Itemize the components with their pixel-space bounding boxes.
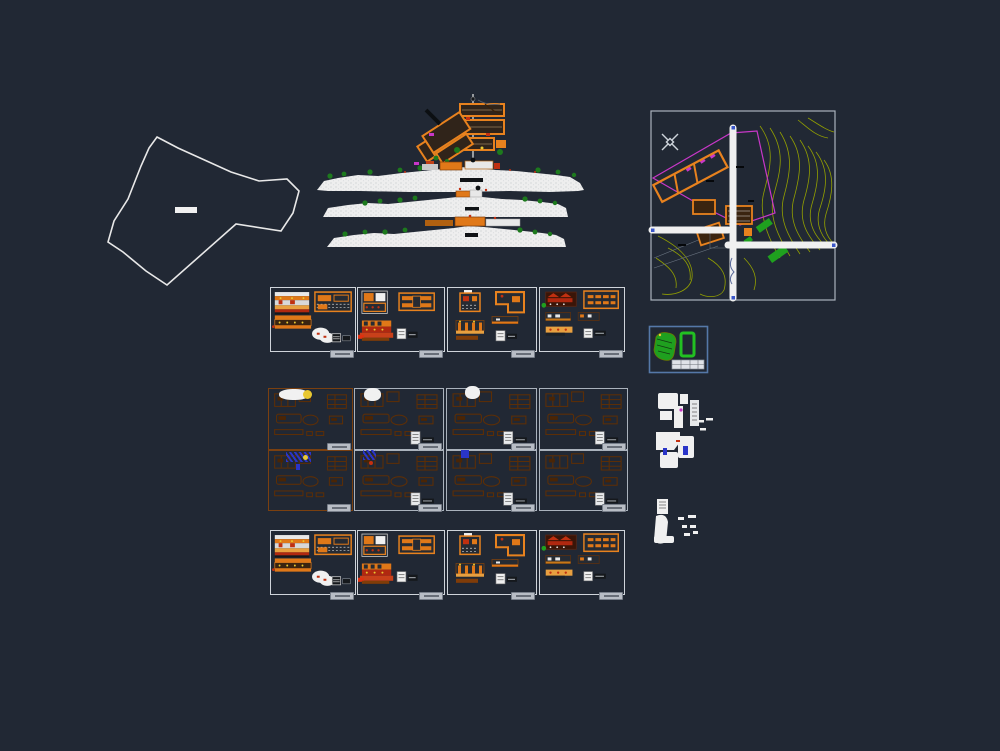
elevation-bottomleft	[358, 321, 393, 341]
blue-accent	[296, 464, 300, 470]
sheet-label[interactable]	[330, 350, 354, 358]
plan-topleft	[362, 534, 387, 556]
title-stamp	[584, 329, 606, 338]
green-detail-sheet[interactable]	[648, 325, 710, 375]
sheet-content	[540, 288, 624, 351]
dim-plans	[546, 392, 621, 436]
sheet-content	[540, 451, 627, 510]
elevation-mid	[272, 558, 311, 571]
drawing-sheet-upper-row[interactable]	[539, 287, 625, 352]
sheet-content	[447, 451, 536, 510]
blue-accent	[461, 450, 469, 458]
sheet-label[interactable]	[599, 350, 623, 358]
sheet-label[interactable]	[602, 504, 626, 512]
unit-plan-cluster-upper[interactable]	[650, 388, 725, 483]
sheet-label[interactable]	[418, 504, 442, 512]
upper-building-bar	[653, 150, 727, 202]
scribble-accent	[363, 450, 376, 460]
drawing-sheet-upper-row[interactable]	[357, 287, 445, 352]
detail-cloud	[312, 328, 335, 343]
plan-topleft	[362, 291, 387, 313]
drawing-sheet-upper-row[interactable]	[447, 287, 537, 352]
elevation-strip-1	[317, 158, 584, 192]
sheet-label[interactable]	[511, 504, 535, 512]
drawing-sheet-middle-row-2[interactable]	[446, 450, 537, 511]
elevation-mid-pair	[546, 312, 599, 320]
elevation-bottomleft	[456, 321, 484, 340]
boundary-outline	[108, 137, 299, 285]
drawing-sheet-middle-row-1[interactable]	[539, 388, 628, 450]
elevation-center	[492, 559, 518, 566]
master-plan-and-elevations[interactable]	[310, 90, 595, 250]
elevation-topleft	[275, 535, 309, 557]
plan-topright	[399, 536, 434, 553]
plan-topright	[315, 292, 351, 311]
sun-accent	[303, 455, 308, 460]
drawing-sheet-lower-row[interactable]	[539, 530, 625, 595]
plan-topright	[584, 534, 618, 551]
unit-plan-cluster-lower[interactable]	[648, 496, 710, 548]
title-stamp	[496, 331, 517, 341]
dim-plans	[453, 454, 530, 497]
roof-shadow-bar	[426, 110, 440, 124]
sheet-content	[447, 389, 536, 449]
title-stamp	[397, 329, 418, 339]
sheet-label[interactable]	[330, 592, 354, 600]
cloud-accent	[465, 386, 480, 399]
elevation-bottomleft	[358, 564, 393, 584]
sun-accent	[303, 390, 312, 399]
mini-table	[672, 360, 704, 369]
sheet-content	[448, 288, 536, 351]
drawing-sheet-lower-row[interactable]	[447, 530, 537, 595]
plan-topright	[496, 535, 524, 555]
elevation-topleft	[542, 292, 577, 308]
plan-topright	[584, 291, 618, 308]
plan-topright	[496, 292, 524, 312]
elevation-mid	[272, 315, 311, 328]
sheet-content	[358, 288, 444, 351]
dim-plans	[453, 392, 530, 436]
drawing-sheet-middle-row-1[interactable]	[446, 388, 537, 450]
elevation-mid-pair	[546, 555, 599, 563]
site-location-polygon[interactable]	[95, 125, 310, 295]
sheet-content	[540, 531, 624, 594]
sheet-content	[358, 531, 444, 594]
sheet-content	[271, 531, 355, 594]
title-stamp	[397, 572, 418, 582]
green-site-blob	[654, 333, 676, 361]
plan-masses	[656, 393, 694, 468]
elevation-center	[492, 316, 518, 323]
plan-topright	[315, 535, 351, 554]
red-accent	[369, 461, 373, 465]
strip-bottomleft	[546, 570, 573, 579]
section-marker	[471, 97, 475, 101]
dim-plans	[546, 454, 621, 497]
drawing-sheet-lower-row[interactable]	[357, 530, 445, 595]
sheet-label[interactable]	[327, 504, 351, 512]
sheet-label[interactable]	[511, 592, 535, 600]
strip-bottomleft	[546, 327, 573, 336]
elevation-topleft	[275, 292, 309, 314]
plan-topleft	[460, 533, 480, 554]
title-stamp	[332, 334, 350, 342]
drawing-sheet-lower-row[interactable]	[270, 530, 356, 595]
annotation-strip	[690, 400, 699, 426]
green-plan-outline	[681, 333, 694, 356]
plan-masses	[654, 499, 674, 544]
sheet-content	[271, 288, 355, 351]
note-marks	[678, 515, 698, 536]
site-plan-sheet[interactable]	[648, 108, 838, 303]
dim-plans	[361, 454, 437, 497]
cad-canvas[interactable]	[0, 0, 1000, 751]
sheet-label[interactable]	[599, 592, 623, 600]
sheet-content	[540, 389, 627, 449]
elevation-strip-3	[327, 215, 566, 247]
detail-cloud	[312, 571, 335, 586]
drawing-sheet-upper-row[interactable]	[270, 287, 356, 352]
title-stamp	[496, 574, 517, 584]
lower-building-cluster	[693, 200, 752, 248]
elevation-topleft	[542, 535, 577, 551]
elevation-bottomleft	[456, 564, 484, 583]
sheet-label[interactable]	[419, 350, 443, 358]
title-stamp	[332, 577, 350, 585]
drawing-sheet-middle-row-2[interactable]	[539, 450, 628, 511]
north-arrow-icon	[662, 134, 678, 150]
sheet-label[interactable]	[511, 350, 535, 358]
sheet-content	[448, 531, 536, 594]
plan-topright	[399, 293, 434, 310]
title-stamp	[584, 572, 606, 581]
site-marker	[175, 207, 197, 213]
sheet-label[interactable]	[419, 592, 443, 600]
plan-topleft	[460, 290, 480, 311]
cloud-accent	[364, 388, 381, 401]
